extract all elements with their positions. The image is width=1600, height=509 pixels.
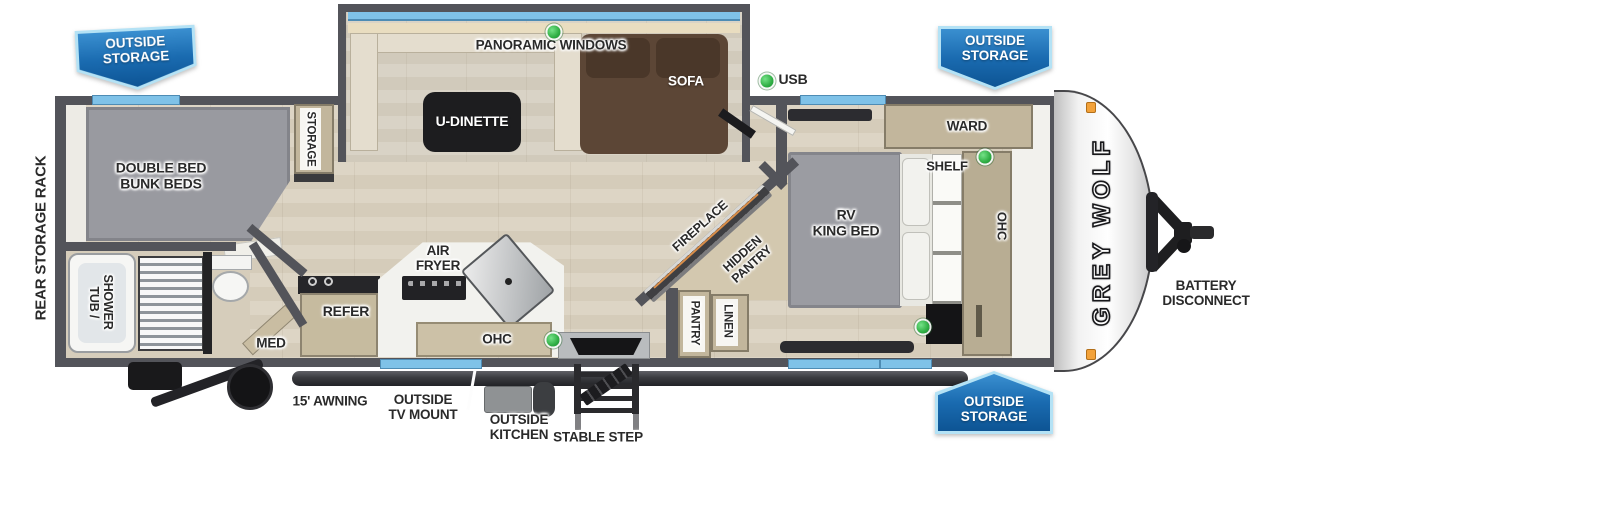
awning-label: 15' AWNING — [293, 393, 368, 408]
clearance-light-bottom — [1086, 349, 1096, 360]
shelf-label: SHELF — [926, 160, 968, 175]
green-indicator-icon — [548, 26, 561, 39]
green-indicator-icon — [761, 75, 774, 88]
ward-label: WARD — [947, 118, 987, 133]
clearance-light-top — [1086, 102, 1096, 113]
stable-step-label: STABLE STEP — [553, 429, 643, 444]
green-indicator-icon — [547, 334, 560, 347]
refer-label: REFER — [323, 304, 369, 320]
bedroom-shelf-stack — [932, 154, 962, 306]
tongue-jack-post — [1146, 192, 1158, 272]
nightstand — [926, 304, 962, 344]
outside-storage-banner-door-side: OUTSIDE STORAGE — [935, 371, 1047, 428]
battery-disconnect-label: BATTERY DISCONNECT — [1162, 278, 1249, 308]
outside-kitchen-label: OUTSIDE KITCHEN — [490, 412, 549, 442]
shower-rail — [203, 252, 212, 354]
bedroom-ohc-handle — [976, 305, 982, 337]
sofa-label: SOFA — [668, 73, 704, 88]
bedroom-ohc — [962, 151, 1012, 356]
bathroom-wall — [60, 242, 236, 251]
step-leg-right — [633, 414, 639, 430]
valance-strip — [348, 23, 740, 33]
bedroom-ohc-label: OHC — [994, 212, 1009, 240]
sink-knob-1 — [308, 277, 317, 286]
outside-storage-banner-front: OUTSIDE STORAGE — [938, 26, 1046, 84]
step-rung-4 — [576, 408, 636, 413]
range-cooktop — [402, 276, 466, 300]
outside-storage-banner-rear: OUTSIDE STORAGE — [75, 25, 192, 87]
grey-wolf-logo: GREY WOLF — [1090, 136, 1117, 326]
window-front-bottom — [880, 359, 932, 369]
outside-tv-mount-label: OUTSIDE TV MOUNT — [389, 392, 458, 422]
rear-accessory-box — [128, 362, 182, 390]
bedroom-bench — [780, 341, 914, 353]
entry-door-step — [570, 338, 642, 355]
bed-pillow-2 — [902, 232, 930, 300]
sink-knob-2 — [324, 277, 333, 286]
outside-kitchen-box — [484, 386, 532, 413]
outside-storage-banner-rear-label: OUTSIDE STORAGE — [101, 29, 170, 88]
rear-accessory-tank — [227, 364, 273, 410]
green-indicator-icon — [917, 321, 930, 334]
panoramic-windows-label: PANORAMIC WINDOWS — [476, 37, 627, 52]
sofa-cushion-right — [656, 38, 720, 78]
kitchen-ohc-label: OHC — [482, 331, 511, 346]
pantry-side-wall — [666, 288, 678, 358]
air-fryer-label: AIR FRYER — [416, 243, 460, 273]
u-dinette-label: U-DINETTE — [436, 114, 509, 130]
bunk-storage-shelf — [294, 174, 334, 182]
usb-label: USB — [779, 72, 808, 88]
green-indicator-icon — [979, 151, 992, 164]
med-label: MED — [256, 335, 285, 350]
toilet-bowl — [212, 271, 249, 302]
step-leg-left — [575, 414, 581, 430]
toilet-tank — [208, 255, 252, 270]
window-bedroom-bottom — [788, 359, 880, 369]
dinette-bench-left — [350, 33, 378, 151]
bedroom-wall — [776, 100, 787, 184]
linen-label: LINEN — [721, 304, 734, 338]
window-kitchen-bottom — [380, 359, 482, 369]
window-bunk — [92, 95, 180, 105]
rear-storage-rack-label: REAR STORAGE RACK — [34, 156, 51, 321]
hitch-a-frame — [1150, 190, 1220, 276]
outside-storage-banner-door-side-label: OUTSIDE STORAGE — [961, 374, 1028, 431]
tub-shower-label: TUB / SHOWER — [87, 274, 115, 329]
bunk-storage-label: STORAGE — [304, 111, 317, 166]
range-knobs — [408, 281, 462, 286]
bedroom-tv-bar — [788, 109, 872, 121]
shower-door — [138, 256, 204, 351]
pantry-label: PANTRY — [688, 301, 701, 346]
outside-storage-banner-front-label: OUTSIDE STORAGE — [962, 29, 1029, 87]
king-bed-label: RV KING BED — [813, 207, 880, 238]
window-bedroom-top — [800, 95, 886, 105]
panoramic-window-strip — [348, 12, 740, 21]
bunk-bed-label: DOUBLE BED BUNK BEDS — [116, 160, 207, 191]
sink-faucet-dot — [505, 278, 512, 285]
floorplan-canvas: OUTSIDE STORAGE OUTSIDE STORAGE OUTSIDE … — [0, 0, 1600, 509]
